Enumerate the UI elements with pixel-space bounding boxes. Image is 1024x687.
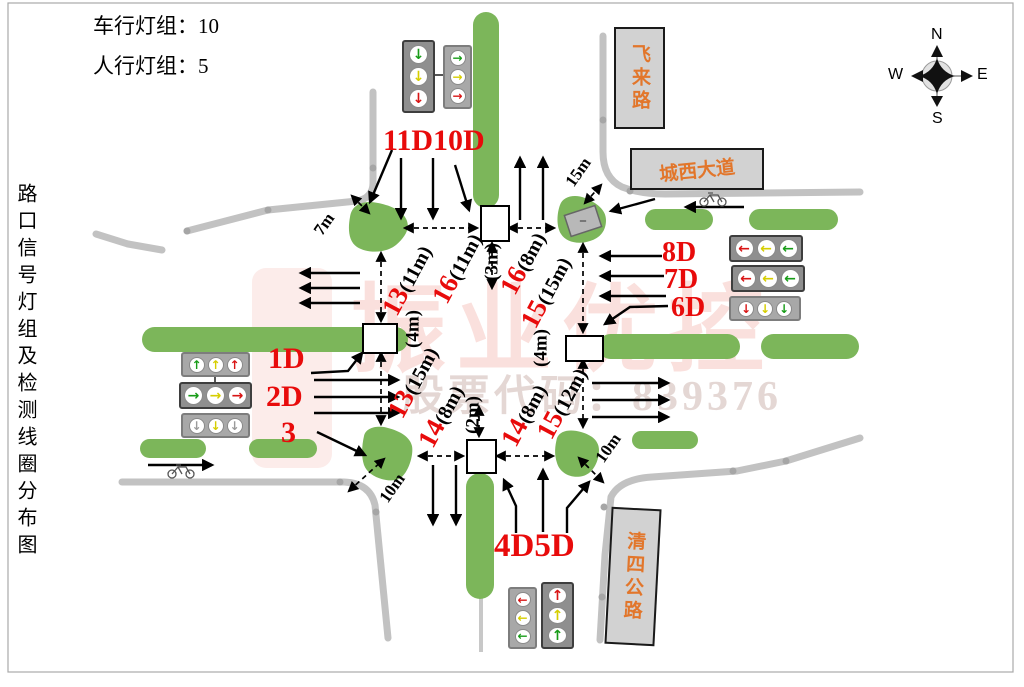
signal-head-south-main: ↑ ↑ ↑ xyxy=(541,582,574,649)
road-sign-chengxi-text: 城西大道 xyxy=(658,152,736,187)
red-up-arrow-lens: ↑ xyxy=(227,357,243,373)
green-left-arrow-lens: ← xyxy=(781,269,800,288)
median-south xyxy=(466,473,494,599)
signal-head-north-turn: → → → xyxy=(443,45,472,109)
median-northeast-pill1 xyxy=(645,209,713,230)
yellow-up-arrow-lens: ↑ xyxy=(548,607,567,624)
controller-box-south xyxy=(466,439,497,474)
vehicle-group-count: 车行灯组：10 xyxy=(93,10,219,40)
red-right-arrow-lens: → xyxy=(450,88,466,104)
yellow-up-arrow-lens: ↑ xyxy=(208,357,224,373)
median-east-b xyxy=(761,334,859,359)
leader-1d xyxy=(311,353,362,373)
compass-south-arrow xyxy=(931,96,943,107)
controller-box-west xyxy=(362,323,398,354)
compass-east-arrow xyxy=(961,70,973,82)
controller-box-east xyxy=(565,335,604,362)
road-sign-qingsi: 清四公路 xyxy=(604,507,661,646)
group-label-3: 3 xyxy=(281,418,296,448)
signal-head-east-left-1: ← ← ← xyxy=(729,235,803,262)
red-down-arrow-lens: ↓ xyxy=(738,301,754,317)
green-down-arrow-lens: ↓ xyxy=(409,45,428,64)
road-sign-qingsi-text: 清四公路 xyxy=(617,530,649,623)
signal-head-north-main: ↓ ↓ ↓ xyxy=(402,40,435,113)
red-left-arrow-lens: ← xyxy=(737,269,756,288)
median-southeast-pill xyxy=(632,431,698,449)
yellow-down-arrow-lens: ↓ xyxy=(409,67,428,86)
green-up-arrow-lens: ↑ xyxy=(189,357,205,373)
gray-down-arrow-lens: ↓ xyxy=(189,418,205,434)
yellow-left-arrow-lens: ← xyxy=(759,269,778,288)
gap-4m-east: (4m) xyxy=(532,329,551,367)
group-label-6d: 6D xyxy=(671,294,705,322)
road-sign-feilai-text: 飞来路 xyxy=(626,44,653,113)
island-northwest xyxy=(349,202,408,252)
green-up-arrow-lens: ↑ xyxy=(548,627,567,644)
yellow-left-arrow-lens: ← xyxy=(757,239,776,258)
compass-s-label: S xyxy=(932,110,943,128)
group-label-7d: 7D xyxy=(664,266,698,294)
controller-box-north xyxy=(480,205,510,242)
yellow-left-arrow-lens: ← xyxy=(515,610,531,625)
median-east-a xyxy=(598,334,740,359)
compass-west-arrow xyxy=(911,70,923,82)
group-label-south: 4D5D xyxy=(494,530,575,563)
gray-down-arrow-lens: ↓ xyxy=(227,418,243,434)
group-label-2d: 2D xyxy=(266,382,303,412)
group-label-8d: 8D xyxy=(662,239,696,267)
green-left-arrow-lens: ← xyxy=(515,629,531,644)
signal-head-west-right: → → → xyxy=(179,382,252,409)
compass-e-label: E xyxy=(977,66,988,84)
red-left-arrow-lens: ← xyxy=(515,592,531,607)
signal-head-east-left-2: ← ← ← xyxy=(731,265,805,292)
signal-head-west-up: ↑ ↑ ↑ xyxy=(181,352,250,377)
compass-north-arrow xyxy=(931,45,943,57)
signal-head-east-pedestrian: ↓ ↓ ↓ xyxy=(729,296,801,321)
red-down-arrow-lens: ↓ xyxy=(409,89,428,108)
median-northeast-pill2 xyxy=(749,209,838,230)
group-label-1d: 1D xyxy=(268,344,305,374)
road-northwest-stub1 xyxy=(128,244,162,250)
diagram-title: 路口信号灯组及检测线圈分布图 xyxy=(12,183,38,573)
compass-n-label: N xyxy=(931,26,943,44)
signal-head-west-pedestrian: ↓ ↓ ↓ xyxy=(181,413,250,438)
yellow-down-arrow-lens: ↓ xyxy=(208,418,224,434)
road-sign-chengxi: 城西大道 xyxy=(630,148,764,190)
leader-3 xyxy=(317,432,365,455)
road-northwest-stub2 xyxy=(96,234,128,244)
compass-rose xyxy=(911,45,973,107)
median-west-pill1 xyxy=(140,439,206,458)
red-right-arrow-lens: → xyxy=(228,386,247,405)
diagram-canvas xyxy=(0,0,1024,687)
green-right-arrow-lens: → xyxy=(450,50,466,66)
signal-head-south-left: ← ← ← xyxy=(508,587,537,649)
leader-cabinet xyxy=(611,199,655,211)
road-northwest xyxy=(187,92,373,231)
pedestrian-group-count: 人行灯组：5 xyxy=(93,50,209,80)
road-sign-feilai: 飞来路 xyxy=(614,27,665,129)
green-down-arrow-lens: ↓ xyxy=(776,301,792,317)
green-right-arrow-lens: → xyxy=(184,386,203,405)
road-southwest xyxy=(122,482,388,638)
signal-connector-north xyxy=(435,74,443,76)
yellow-right-arrow-lens: → xyxy=(206,386,225,405)
compass-w-label: W xyxy=(888,66,903,84)
median-north xyxy=(473,12,499,208)
yellow-down-arrow-lens: ↓ xyxy=(757,301,773,317)
group-label-north: 11D10D xyxy=(383,126,485,156)
intersection-diagram: 振业优控 股票代码：839376 xyxy=(0,0,1024,687)
yellow-right-arrow-lens: → xyxy=(450,69,466,85)
gap-2m: (2m) xyxy=(464,396,483,434)
red-left-arrow-lens: ← xyxy=(735,239,754,258)
leader-6d xyxy=(605,306,668,324)
red-up-arrow-lens: ↑ xyxy=(548,587,567,604)
bicycle-icon-sw xyxy=(168,465,194,478)
green-left-arrow-lens: ← xyxy=(779,239,798,258)
